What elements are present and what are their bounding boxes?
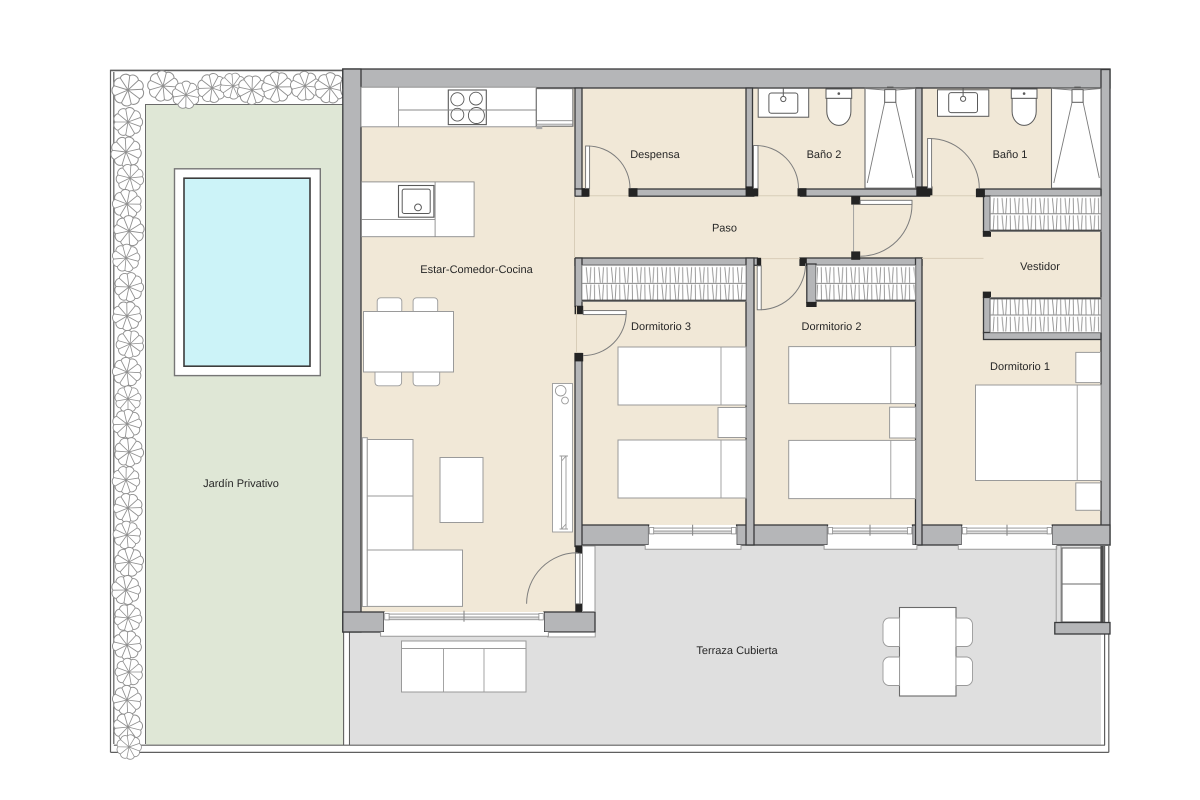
svg-text:Estar-Comedor-Cocina: Estar-Comedor-Cocina: [420, 264, 533, 276]
svg-text:Paso: Paso: [712, 223, 737, 235]
svg-text:Dormitorio 1: Dormitorio 1: [990, 361, 1050, 373]
svg-text:Dormitorio 2: Dormitorio 2: [802, 321, 862, 333]
svg-text:Despensa: Despensa: [630, 149, 680, 161]
svg-text:Baño 2: Baño 2: [807, 149, 842, 161]
svg-text:Terraza Cubierta: Terraza Cubierta: [696, 645, 778, 657]
svg-text:Jardín Privativo: Jardín Privativo: [203, 478, 279, 490]
svg-text:Baño 1: Baño 1: [993, 149, 1028, 161]
svg-text:Vestidor: Vestidor: [1020, 261, 1060, 273]
svg-text:Dormitorio 3: Dormitorio 3: [631, 321, 691, 333]
